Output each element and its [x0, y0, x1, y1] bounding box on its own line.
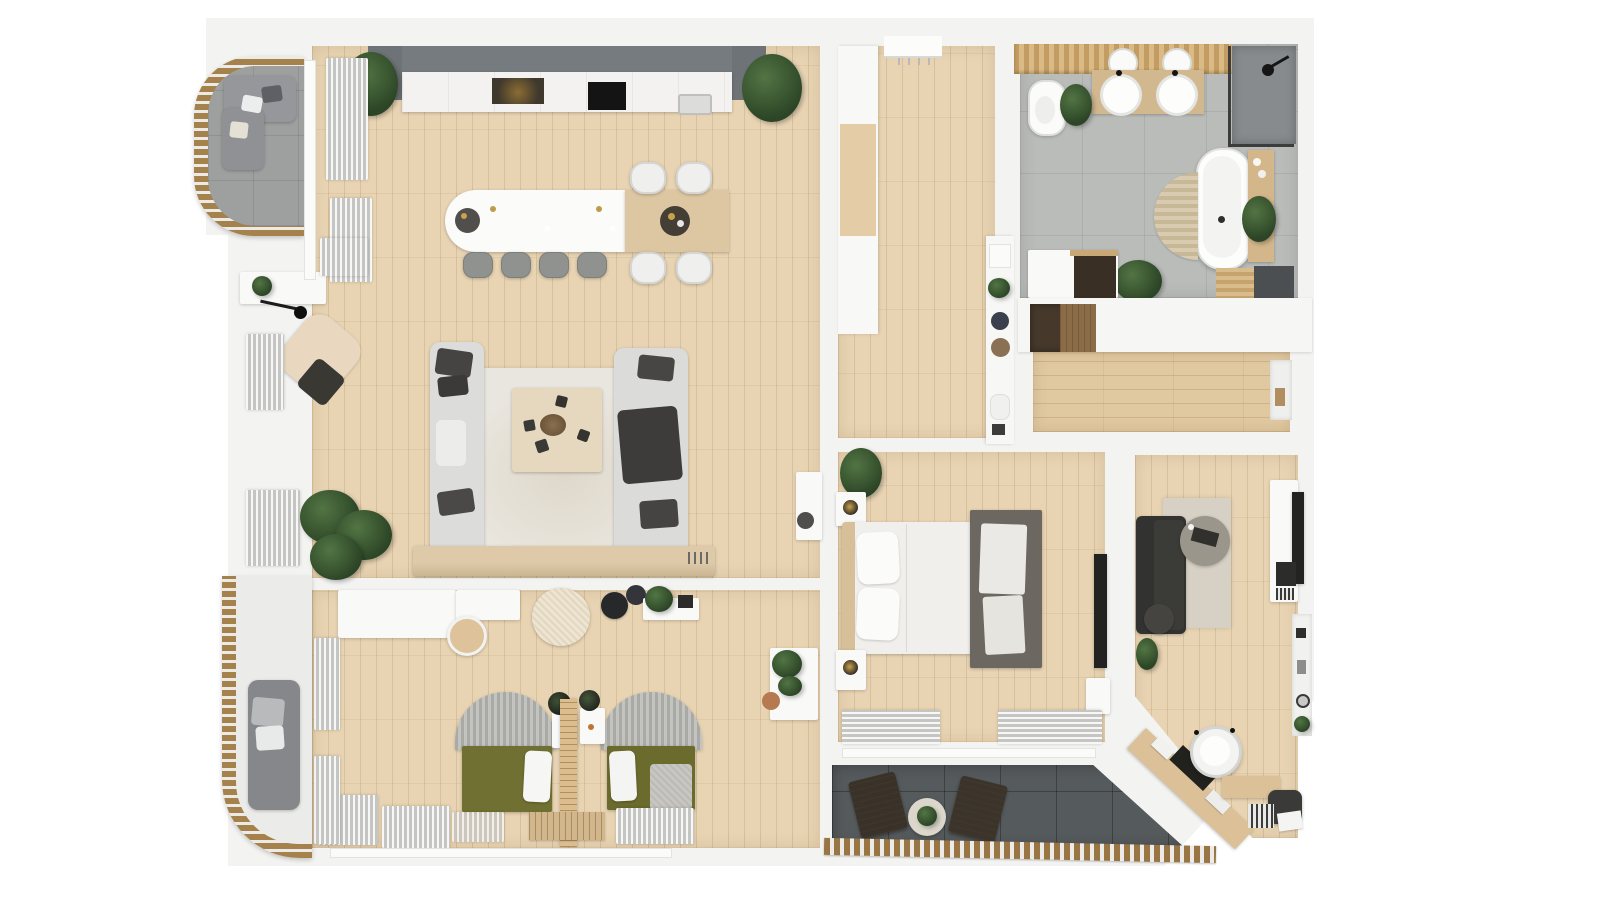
caddy-cup-1 [1253, 158, 1261, 166]
bathtub-inner [1203, 156, 1241, 258]
master-pillow-1 [856, 531, 901, 585]
window-master-bottom [842, 748, 1096, 758]
monstera-leaf-3 [310, 534, 362, 580]
kids-desk [338, 590, 456, 638]
island-faucet [461, 213, 467, 219]
knit-pouf [532, 588, 590, 646]
entry-door-tick-3 [918, 58, 920, 65]
kids-shelf-frames [678, 595, 693, 608]
office-shelf-decor-3 [1296, 694, 1310, 708]
balcony-tl-pillow-white [241, 94, 263, 113]
shower-floor [1232, 46, 1296, 144]
caddy-cup-2 [1258, 170, 1266, 178]
sofa-left-pillow-1 [434, 348, 473, 379]
office-shelf-decor-1 [1296, 628, 1306, 638]
master-lamp-2 [843, 660, 858, 675]
vessel-sink-1 [1100, 74, 1142, 116]
island-decor-gold-1 [490, 206, 496, 212]
bed-right-knit-throw [650, 764, 692, 810]
floor-corridor [1033, 352, 1290, 432]
wall-desk [796, 472, 822, 540]
island-sink [455, 208, 480, 233]
master-headboard [842, 522, 855, 654]
sofa-left-pillow-2 [437, 374, 469, 397]
window-living-left [304, 60, 316, 280]
curtain-living-left-1 [326, 58, 368, 180]
curtain-kids-2 [382, 806, 450, 848]
curtain-kids-4 [616, 808, 694, 844]
coffee-table-decor-2 [523, 419, 536, 432]
nightstand-orange-2 [588, 724, 594, 730]
shower-glass-vertical [1228, 46, 1231, 146]
entry-door [884, 36, 942, 58]
floor-lamp-head [294, 306, 307, 319]
hall-wardrobe-wood-inset [840, 124, 876, 236]
office-chair-armrest-1 [1194, 730, 1199, 735]
dining-tray [660, 206, 690, 236]
tray-cup-1 [668, 213, 675, 220]
vessel-sink-2 [1156, 74, 1198, 116]
hall-shelf-plant [988, 278, 1010, 298]
bar-stool-2 [501, 252, 531, 278]
curtain-kids-3 [452, 812, 504, 842]
bar-stool-3 [539, 252, 569, 278]
dark-pouf-1 [601, 592, 628, 619]
shower-glass-horizontal [1228, 144, 1294, 147]
curtain-master-1 [842, 710, 940, 744]
open-closet-wood [1060, 304, 1096, 352]
entry-door-tick-4 [928, 58, 930, 65]
coffee-table-dried-bouquet [540, 414, 566, 436]
office-shelf-plant [1294, 716, 1310, 732]
office-plant [1136, 638, 1158, 670]
island-decor-gold-2 [596, 206, 602, 212]
master-tv [1094, 554, 1107, 668]
hall-shelf-vase [990, 394, 1010, 420]
curtain-nook-2 [246, 490, 300, 566]
curtain-kids-left-2 [314, 756, 340, 844]
hall-shelf-box [989, 244, 1011, 268]
black-tap-1 [1116, 70, 1122, 76]
bath-cabinet-wood-top [1070, 250, 1118, 256]
office-printer [1277, 810, 1303, 831]
wall-desk-stool [797, 512, 814, 529]
bath-plant-floor [1114, 260, 1162, 302]
balcony-tl-sofa-side [222, 108, 264, 170]
bath-caddy-plant [1242, 196, 1276, 242]
office-chair-seat [1200, 736, 1230, 766]
hall-shelf-navy-bowl [991, 312, 1009, 330]
corridor-niche-decor [1275, 388, 1285, 406]
island-light-dot-1 [545, 226, 550, 231]
balcony-tl-pillow-dark [261, 85, 283, 104]
bath-plant-toilet [1060, 84, 1092, 126]
plant-kitchen-right [742, 54, 802, 122]
sofa-right-pillow-1 [637, 354, 675, 382]
balcony-tl-pillow-beige [229, 121, 249, 139]
dining-chair-3 [630, 252, 666, 284]
office-table-cup [1188, 524, 1194, 530]
office-unit-drawers [1276, 562, 1296, 586]
kids-bench [529, 812, 605, 840]
kids-console-plant-2 [778, 676, 802, 696]
kids-shelf-plant [645, 586, 673, 612]
curtain-nook-1 [246, 334, 284, 410]
bath-cabinet-open-shelf [1074, 254, 1116, 298]
bar-stool-1 [463, 252, 493, 278]
island-light-dot-2 [610, 226, 615, 231]
terracotta-pot [762, 692, 780, 710]
window-kids-bottom [330, 848, 672, 858]
balcony-bl-pillow-white [255, 725, 285, 751]
toilet-bowl [1035, 96, 1055, 124]
black-tap-2 [1172, 70, 1178, 76]
master-pillow-2 [856, 587, 901, 641]
master-plant [840, 448, 882, 498]
nook-console-plant [252, 276, 272, 296]
master-dresser [1086, 678, 1110, 714]
sofa-right-throw [617, 406, 683, 485]
master-lamp-1 [843, 500, 858, 515]
kids-desk-chair [447, 616, 487, 656]
dining-chair-1 [630, 162, 666, 194]
hall-shelf-basket [991, 338, 1010, 357]
dining-chair-4 [676, 252, 712, 284]
kitchen-sink [678, 94, 712, 115]
media-bench-decor [688, 552, 712, 564]
office-shelf-decor-2 [1297, 660, 1306, 674]
induction-hob [588, 82, 626, 110]
entry-door-tick-1 [898, 58, 900, 65]
hall-shelf-dark-decor [992, 424, 1005, 435]
office-floor-books [1248, 804, 1274, 828]
bed-right-pillow [609, 750, 638, 801]
sofa-left-pillow-3 [437, 488, 476, 517]
master-duvet-seam [906, 524, 907, 652]
oven [492, 78, 544, 104]
bar-stool-4 [577, 252, 607, 278]
entry-door-tick-2 [908, 58, 910, 65]
curtain-kids-left-1 [314, 638, 340, 730]
office-unit-books [1276, 588, 1294, 600]
office-chair-armrest-2 [1230, 728, 1235, 733]
curtain-master-2 [998, 710, 1102, 744]
bath-dark-mat [1254, 266, 1294, 300]
sofa-left-cushion [436, 420, 466, 466]
media-bench [413, 546, 715, 576]
curtain-nook-3 [320, 238, 368, 276]
tray-cup-2 [677, 220, 684, 227]
bed-left-pillow [523, 750, 553, 802]
bathtub-drain [1218, 216, 1225, 223]
balcony-bl-pillow-gray [251, 697, 285, 728]
floor-plan-stage [0, 0, 1600, 900]
kids-plant-vase-2 [579, 690, 600, 711]
kids-console-plant-1 [772, 650, 802, 678]
kitchen-upper-cabinets [368, 46, 766, 72]
office-pouf [1144, 604, 1174, 634]
master-rug-throw-2 [983, 595, 1026, 655]
terrace-plant [917, 806, 937, 826]
sofa-right-pillow-2 [639, 499, 679, 530]
dining-chair-2 [676, 162, 712, 194]
master-rug-throw-1 [979, 523, 1027, 595]
